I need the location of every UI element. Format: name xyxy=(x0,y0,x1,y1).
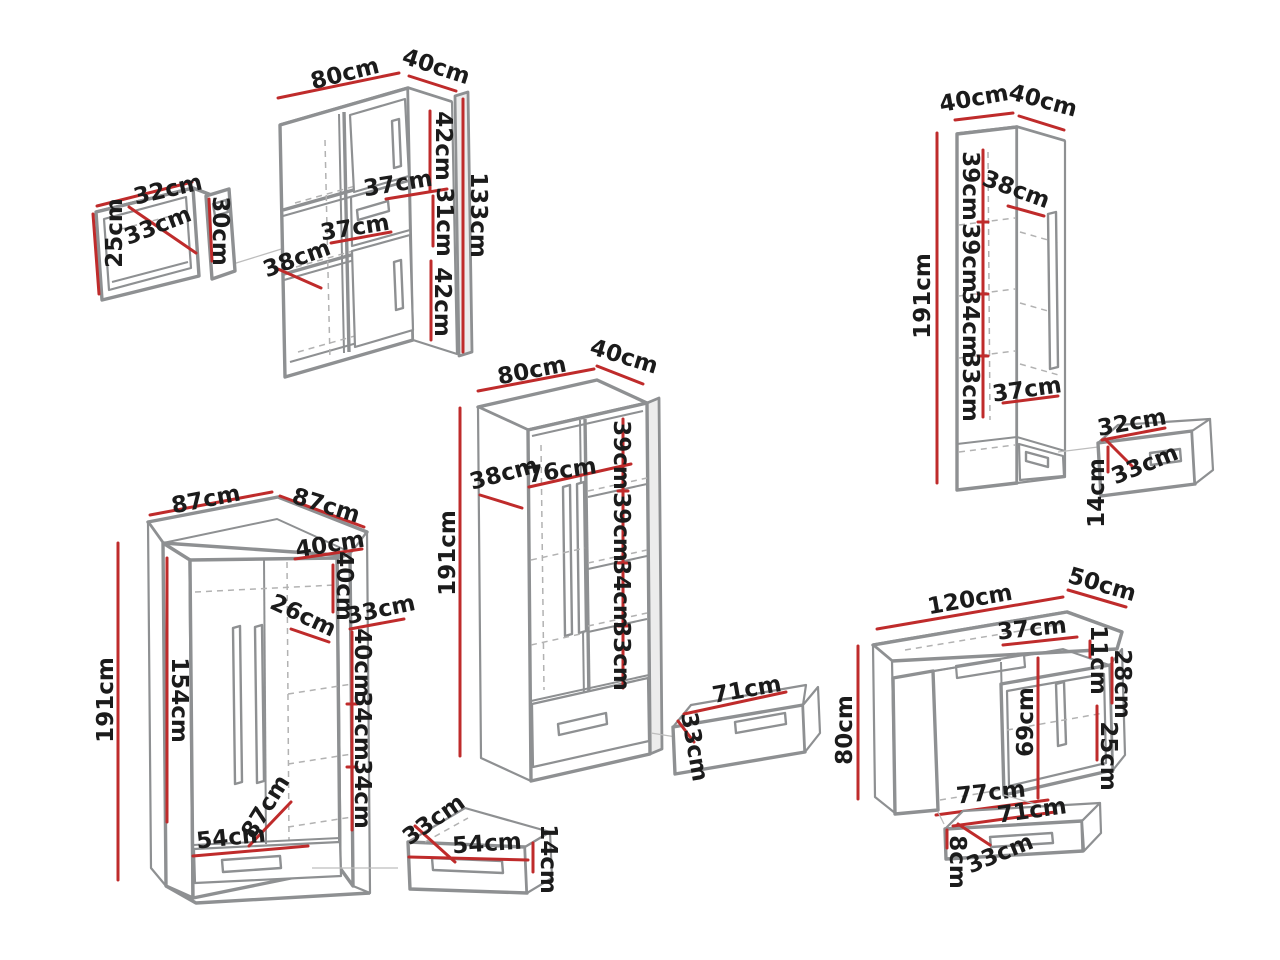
desk-left-side xyxy=(873,645,895,813)
dim-label-section-4: 33cm xyxy=(608,621,634,691)
dim-label-height: 133cm xyxy=(465,172,491,258)
dim-label-depth: 40cm xyxy=(1006,79,1080,122)
dim-label-height: 191cm xyxy=(910,253,936,339)
corner-handle-right xyxy=(255,625,264,783)
dim-label-height: 14cm xyxy=(1084,458,1110,528)
dim-label-front-height: 30cm xyxy=(207,196,233,266)
wardrobe-handle-left xyxy=(563,485,572,636)
dim-label-height: 191cm xyxy=(435,510,461,596)
bookcase-door-top-handle xyxy=(392,119,401,168)
desk-left-panel xyxy=(893,671,938,814)
dim-label-section-1: 39cm xyxy=(957,151,983,221)
dim-label-section-3: 34cm xyxy=(349,759,375,829)
dim-label-section-1: 39cm xyxy=(608,420,634,490)
desk: 120cm 50cm 80cm 37cm 11cm 28cm 69cm 25cm… xyxy=(832,563,1139,815)
dim-label-section-3: 34cm xyxy=(608,559,634,629)
furniture-dimensions-diagram: 32cm 25cm 33cm 30cm xyxy=(0,0,1280,960)
dim-label-width: 80cm xyxy=(495,352,568,391)
dim-label-drawer-front: 11cm xyxy=(1085,625,1111,695)
dim-label-section-3: 34cm xyxy=(957,289,983,359)
dim-label-section-4: 33cm xyxy=(957,352,983,422)
dim-label-door-height: 154cm xyxy=(166,657,192,743)
tall-cabinet-drawer: 32cm 33cm 14cm xyxy=(1058,404,1213,528)
dim-label-width: 54cm xyxy=(451,829,522,860)
dim-label-depth: 40cm xyxy=(587,334,661,379)
dim-label-height: 191cm xyxy=(93,657,119,743)
dim-label-width: 80cm xyxy=(308,53,382,95)
dim-label-door-width: 25cm xyxy=(1095,721,1121,791)
dim-label-height: 80cm xyxy=(832,695,858,765)
dim-label-door-height: 69cm xyxy=(1013,687,1039,757)
dim-label-section-1: 40cm xyxy=(349,628,375,698)
dim-line-width xyxy=(955,113,1013,120)
wardrobe-drawer: 71cm 33cm xyxy=(651,671,820,783)
dim-label-width: 40cm xyxy=(937,80,1010,118)
drawer-right-side xyxy=(803,687,820,752)
dim-label-top-section: 28cm xyxy=(1109,649,1135,719)
dim-label-door-bottom: 42cm xyxy=(429,267,455,337)
wardrobe-handle-right xyxy=(577,482,586,633)
bookcase-door-bottom-handle xyxy=(394,260,403,310)
corner-handle-left xyxy=(233,626,242,784)
cabinet-door-handle xyxy=(1048,212,1058,369)
tall-cabinet: 40cm 40cm 191cm 39cm 39cm 34cm 33cm 38cm… xyxy=(910,79,1080,490)
dim-label-middle-section: 31cm xyxy=(431,187,457,257)
dim-label-door-top: 42cm xyxy=(430,111,456,181)
corner-wardrobe: 87cm 87cm 191cm 154cm 40cm 40cm 26cm 33c… xyxy=(93,481,418,903)
drawer-right-side xyxy=(1192,419,1213,484)
corner-drawer-handle xyxy=(222,856,281,872)
dim-label-height: 14cm xyxy=(535,824,561,894)
desk-door-handle xyxy=(1056,682,1066,746)
dim-label-section-2: 39cm xyxy=(608,492,634,562)
dim-label-section-2: 39cm xyxy=(957,223,983,293)
bookcase-door-bottom xyxy=(352,235,413,347)
bookcase: 80cm 40cm 42cm 37cm 31cm 37cm 38cm 42cm … xyxy=(260,44,491,377)
diagram-canvas: 32cm 25cm 33cm 30cm xyxy=(0,0,1280,960)
dim-label-section-2: 34cm xyxy=(349,691,375,761)
wardrobe: 80cm 40cm 191cm 38cm 76cm 39cm 39cm 34cm… xyxy=(435,334,662,781)
